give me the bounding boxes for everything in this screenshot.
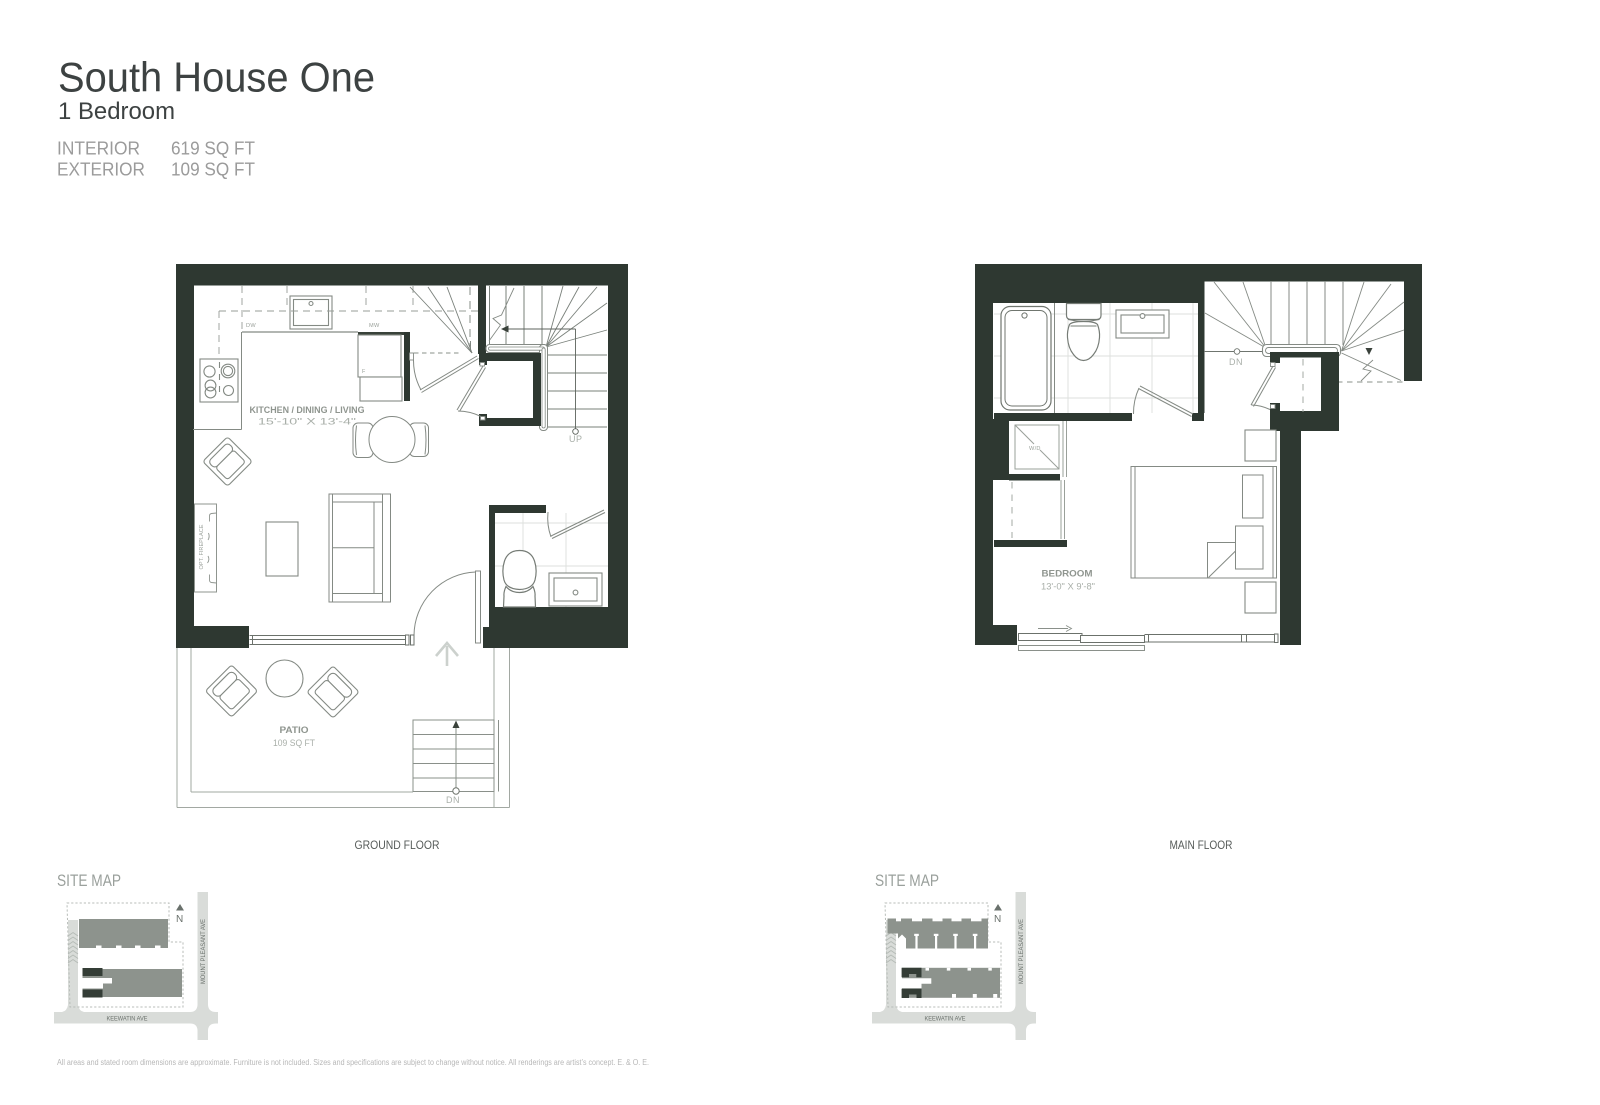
svg-text:619 SQ FT: 619 SQ FT [171, 138, 255, 159]
svg-text:KITCHEN / DINING / LIVING: KITCHEN / DINING / LIVING [250, 405, 365, 415]
svg-text:SITE MAP: SITE MAP [875, 872, 939, 890]
svg-text:MOUNT PLEASANT AVE: MOUNT PLEASANT AVE [201, 919, 207, 984]
svg-text:15'-10" X 13'-4": 15'-10" X 13'-4" [258, 417, 356, 427]
svg-text:MAIN FLOOR: MAIN FLOOR [1170, 840, 1233, 852]
svg-text:OPT. FIREPLACE: OPT. FIREPLACE [199, 524, 205, 570]
svg-text:KEEWATIN AVE: KEEWATIN AVE [925, 1017, 966, 1023]
svg-text:N: N [176, 914, 183, 925]
svg-text:All areas and stated room dime: All areas and stated room dimensions are… [57, 1058, 649, 1067]
svg-text:109 SQ FT: 109 SQ FT [273, 738, 315, 748]
svg-text:DW: DW [246, 323, 256, 329]
svg-text:UP: UP [569, 434, 583, 444]
svg-text:1 Bedroom: 1 Bedroom [58, 98, 175, 125]
svg-text:INTERIOR: INTERIOR [57, 138, 140, 159]
svg-text:13'-0" X 9'-8": 13'-0" X 9'-8" [1041, 582, 1095, 592]
svg-text:SITE MAP: SITE MAP [57, 872, 121, 890]
svg-text:GROUND FLOOR: GROUND FLOOR [355, 840, 440, 852]
svg-text:BEDROOM: BEDROOM [1042, 569, 1093, 579]
svg-text:PATIO: PATIO [280, 725, 309, 735]
svg-text:W/D: W/D [1029, 446, 1041, 452]
svg-text:DN: DN [1229, 357, 1243, 367]
svg-text:South House One: South House One [58, 54, 375, 101]
svg-text:N: N [994, 914, 1001, 925]
svg-text:DN: DN [446, 795, 460, 805]
svg-text:109 SQ FT: 109 SQ FT [171, 159, 255, 180]
svg-text:KEEWATIN AVE: KEEWATIN AVE [107, 1017, 148, 1023]
svg-text:MOUNT PLEASANT AVE: MOUNT PLEASANT AVE [1019, 919, 1025, 984]
svg-text:MW: MW [369, 323, 380, 329]
svg-text:EXTERIOR: EXTERIOR [57, 159, 145, 180]
